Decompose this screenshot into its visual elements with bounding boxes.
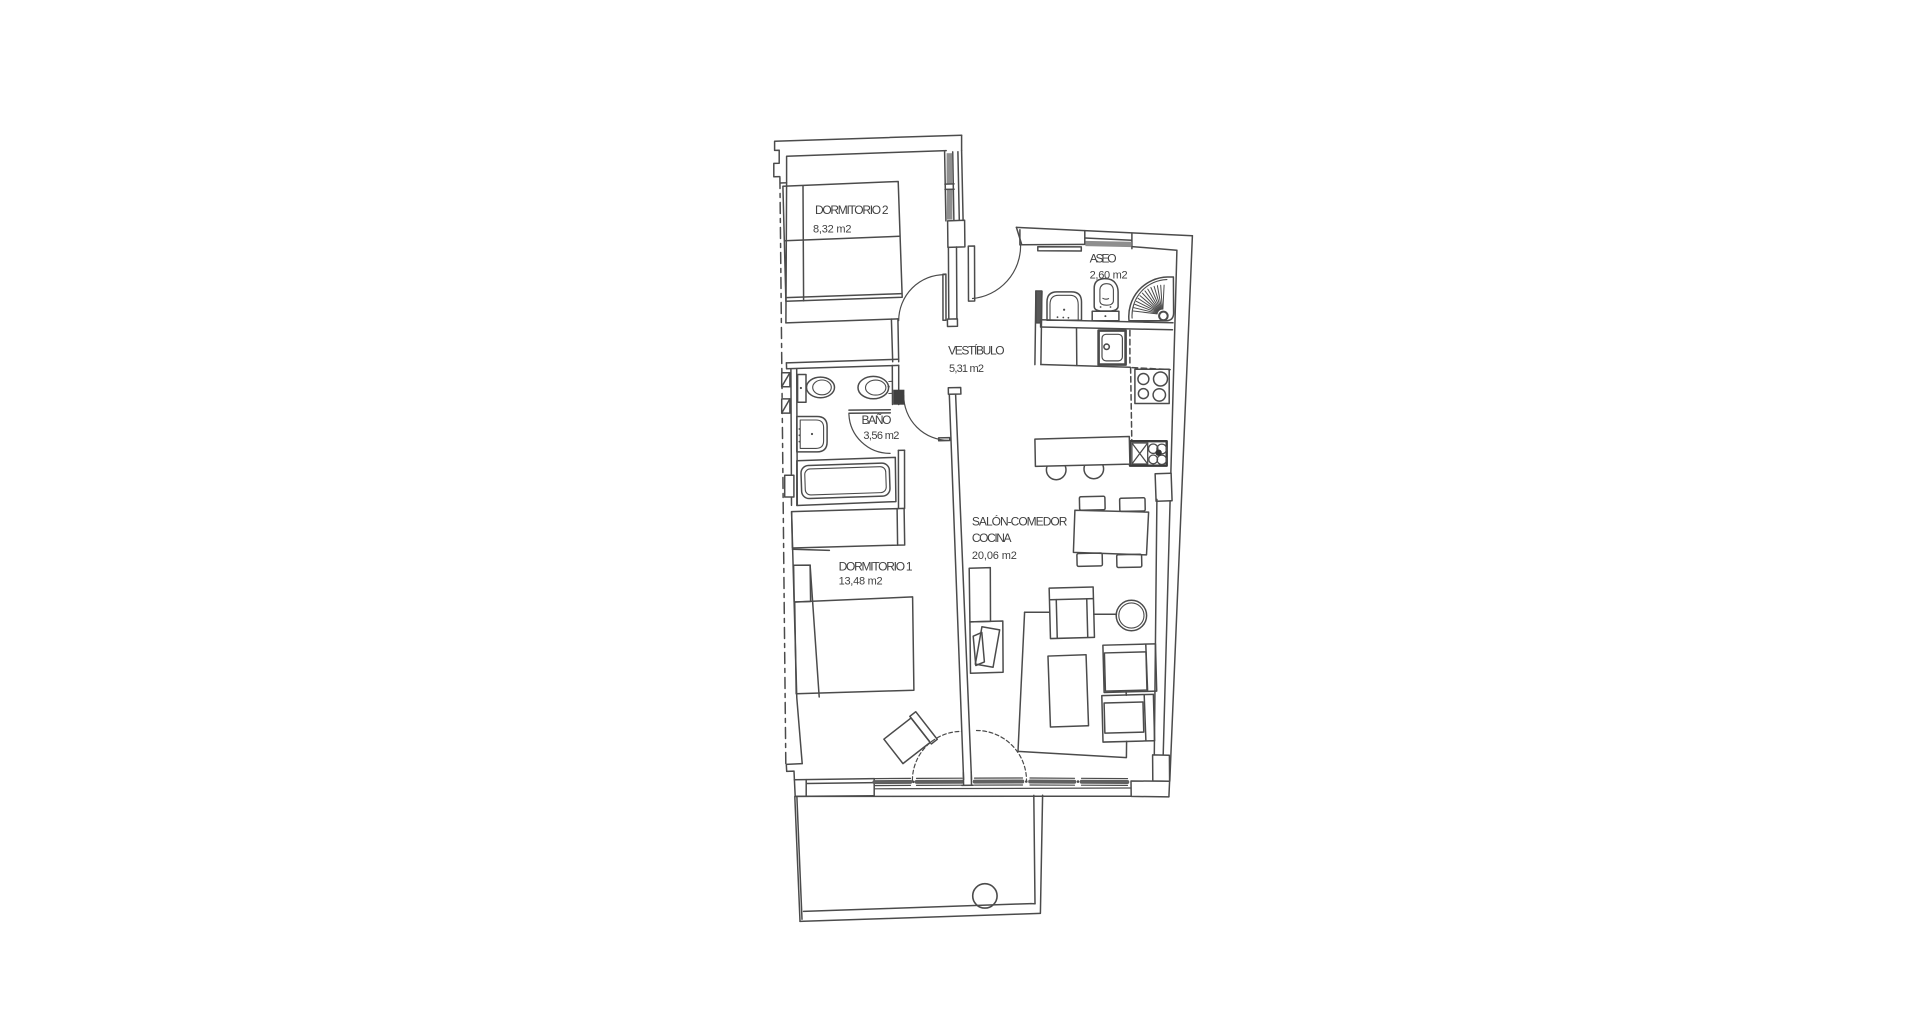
svg-text:COCINA: COCINA	[972, 531, 1012, 545]
svg-text:5,31 m2: 5,31 m2	[949, 363, 984, 375]
svg-text:SALÓN-COMEDOR: SALÓN-COMEDOR	[972, 514, 1068, 529]
svg-text:BAÑO: BAÑO	[862, 413, 892, 427]
svg-text:DORMITORIO 2: DORMITORIO 2	[815, 203, 889, 217]
svg-text:20,06 m2: 20,06 m2	[972, 550, 1017, 562]
svg-text:DORMITORIO 1: DORMITORIO 1	[839, 560, 913, 574]
svg-text:8,32 m2: 8,32 m2	[813, 223, 852, 235]
svg-text:ASEO: ASEO	[1090, 252, 1117, 266]
svg-text:2,60 m2: 2,60 m2	[1090, 269, 1128, 281]
svg-text:13,48 m2: 13,48 m2	[839, 576, 883, 588]
svg-text:3,56 m2: 3,56 m2	[863, 430, 899, 442]
svg-text:VESTÍBULO: VESTÍBULO	[948, 343, 1005, 358]
